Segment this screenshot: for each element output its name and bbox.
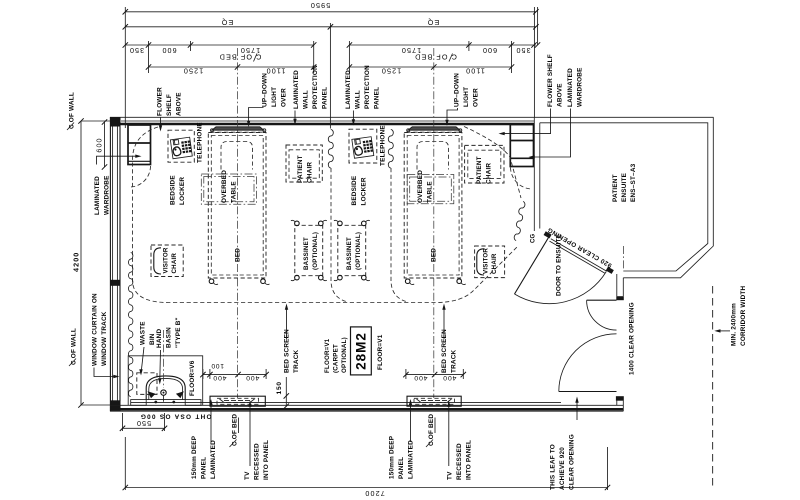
svg-text:INTO PANEL: INTO PANEL — [466, 440, 473, 480]
svg-text:EQ: EQ — [427, 18, 440, 27]
svg-text:PANEL: PANEL — [200, 457, 207, 479]
svg-text:PROTECTION: PROTECTION — [364, 65, 371, 109]
svg-text:150mm DEEP: 150mm DEEP — [191, 435, 198, 479]
svg-text:THIS LEAF TO: THIS LEAF TO — [550, 444, 557, 490]
svg-text:WARDROBE: WARDROBE — [104, 175, 111, 215]
svg-text:TABLE: TABLE — [231, 181, 238, 203]
svg-text:WASTE: WASTE — [140, 321, 147, 345]
svg-text:FLOOR=V6: FLOOR=V6 — [189, 360, 196, 396]
svg-text:TRACK: TRACK — [293, 349, 300, 373]
svg-text:1250: 1250 — [381, 67, 401, 76]
svg-text:LAMINATED: LAMINATED — [210, 440, 217, 479]
svg-text:C OF WALL: C OF WALL — [71, 328, 78, 365]
svg-text:TELEPHONE: TELEPHONE — [196, 122, 203, 163]
svg-text:TRACK: TRACK — [451, 349, 458, 373]
svg-text:ABOVE: ABOVE — [557, 83, 564, 107]
svg-text:1100: 1100 — [465, 67, 485, 76]
svg-text:FLOWER: FLOWER — [157, 87, 164, 116]
svg-text:LAMINATED: LAMINATED — [408, 440, 415, 479]
svg-text:RECESSED: RECESSED — [456, 443, 463, 480]
svg-text:150: 150 — [276, 381, 283, 394]
svg-text:OVER: OVER — [281, 88, 288, 107]
svg-text:LAMINATED: LAMINATED — [94, 176, 101, 215]
svg-text:350: 350 — [515, 46, 530, 55]
svg-text:ABOVE: ABOVE — [176, 92, 183, 116]
svg-text:WINDOW TRACK: WINDOW TRACK — [101, 311, 108, 366]
svg-text:SHELF: SHELF — [166, 94, 173, 116]
svg-text:OVERBED: OVERBED — [417, 170, 424, 203]
svg-text:7200: 7200 — [364, 489, 384, 498]
svg-text:C OF BED: C OF BED — [219, 53, 262, 62]
svg-text:FLOOR=V1: FLOOR=V1 — [324, 338, 331, 373]
svg-text:WARDROBE: WARDROBE — [577, 67, 584, 107]
svg-text:BEDSIDE: BEDSIDE — [351, 175, 358, 205]
svg-text:BEDSIDE: BEDSIDE — [169, 175, 176, 205]
svg-text:MIN. 2400mm: MIN. 2400mm — [731, 303, 738, 346]
svg-text:DOOR TO ENSUITE: DOOR TO ENSUITE — [556, 233, 563, 296]
svg-text:CHAIR: CHAIR — [307, 162, 314, 183]
svg-text:OHT OSA OS 00G: OHT OSA OS 00G — [140, 412, 212, 419]
svg-text:350: 350 — [129, 46, 144, 55]
svg-text:"TYPE B": "TYPE B" — [175, 317, 182, 348]
svg-text:4200: 4200 — [72, 252, 81, 272]
svg-text:CHAIR: CHAIR — [486, 163, 493, 184]
svg-text:PATIENT: PATIENT — [612, 174, 619, 202]
svg-text:600: 600 — [161, 46, 176, 55]
svg-text:OVERBED: OVERBED — [221, 170, 228, 203]
svg-text:CHAIR: CHAIR — [491, 253, 498, 274]
svg-text:WINDOW CURTAIN ON: WINDOW CURTAIN ON — [92, 293, 99, 366]
svg-text:LOCKER: LOCKER — [361, 177, 368, 205]
svg-text:LAMINATED: LAMINATED — [567, 68, 574, 107]
svg-text:5950: 5950 — [310, 1, 330, 10]
svg-text:HAND: HAND — [156, 329, 163, 348]
svg-text:WALL: WALL — [355, 90, 362, 109]
svg-text:400: 400 — [442, 374, 456, 381]
svg-text:BED: BED — [234, 248, 241, 262]
svg-text:FLOWER SHELF: FLOWER SHELF — [547, 54, 554, 107]
svg-text:VISITOR: VISITOR — [163, 247, 170, 273]
svg-text:LAMINATED: LAMINATED — [293, 70, 300, 109]
svg-text:OVER: OVER — [473, 88, 480, 107]
svg-text:600: 600 — [482, 46, 497, 55]
svg-text:INTO PANEL: INTO PANEL — [263, 440, 270, 480]
svg-text:RECESSED: RECESSED — [254, 443, 261, 480]
svg-text:CG: CG — [531, 233, 537, 243]
svg-text:BASIN: BASIN — [166, 327, 173, 348]
svg-text:TV: TV — [447, 471, 454, 480]
svg-text:400: 400 — [212, 374, 226, 381]
svg-text:TELEPHONE: TELEPHONE — [379, 125, 386, 166]
svg-text:TABLE: TABLE — [427, 181, 434, 203]
svg-text:UP–DOWN: UP–DOWN — [454, 73, 461, 107]
svg-text:1400 CLEAR OPENING: 1400 CLEAR OPENING — [628, 302, 635, 375]
svg-text:PANEL: PANEL — [322, 87, 329, 109]
svg-text:1250: 1250 — [183, 67, 203, 76]
svg-text:CLEAR OPENING: CLEAR OPENING — [569, 434, 576, 490]
svg-text:400: 400 — [245, 374, 259, 381]
svg-text:PATIENT: PATIENT — [476, 156, 483, 184]
svg-text:BIN: BIN — [149, 333, 156, 345]
svg-text:ACHIEVE 920: ACHIEVE 920 — [559, 447, 566, 490]
svg-text:100: 100 — [211, 362, 224, 369]
svg-text:OPTIONAL): OPTIONAL) — [341, 337, 348, 373]
svg-text:BED: BED — [430, 248, 437, 262]
svg-text:WALL: WALL — [303, 90, 310, 109]
svg-text:BASSINET: BASSINET — [303, 237, 310, 270]
svg-text:150mm DEEP: 150mm DEEP — [389, 435, 396, 479]
svg-text:UP–DOWN: UP–DOWN — [262, 73, 269, 107]
svg-text:PANEL: PANEL — [398, 457, 405, 479]
svg-text:600: 600 — [95, 137, 104, 152]
svg-text:C OF BED: C OF BED — [414, 53, 457, 62]
svg-text:PROTECTION: PROTECTION — [312, 65, 319, 109]
svg-text:CORRIDOR WIDTH: CORRIDOR WIDTH — [740, 286, 747, 346]
svg-text:C OF WALL: C OF WALL — [69, 92, 76, 129]
svg-text:VISITOR: VISITOR — [483, 248, 490, 274]
svg-text:PANEL: PANEL — [374, 87, 381, 109]
svg-text:LIGHT: LIGHT — [463, 87, 470, 107]
svg-text:FLOOR=V1: FLOOR=V1 — [377, 334, 384, 370]
svg-text:BED SCREEN: BED SCREEN — [441, 329, 448, 373]
svg-text:1100: 1100 — [266, 67, 286, 76]
svg-text:ENS–ST–A3: ENS–ST–A3 — [630, 163, 637, 202]
svg-text:PATIENT: PATIENT — [297, 155, 304, 183]
svg-text:(OPTIONAL): (OPTIONAL) — [355, 232, 362, 270]
svg-text:LIGHT: LIGHT — [271, 87, 278, 107]
svg-text:EQ: EQ — [221, 18, 234, 27]
svg-text:LOCKER: LOCKER — [179, 177, 186, 205]
svg-text:TV: TV — [244, 471, 251, 480]
svg-text:ENSUITE: ENSUITE — [621, 172, 628, 202]
svg-text:28M2: 28M2 — [354, 332, 369, 370]
svg-text:(OPTIONAL): (OPTIONAL) — [312, 232, 319, 270]
svg-text:LAMINATED: LAMINATED — [345, 70, 352, 109]
svg-text:400: 400 — [413, 374, 427, 381]
svg-text:BASSINET: BASSINET — [346, 237, 353, 270]
svg-text:(CARPET: (CARPET — [333, 344, 340, 373]
svg-text:CHAIR: CHAIR — [171, 253, 178, 274]
